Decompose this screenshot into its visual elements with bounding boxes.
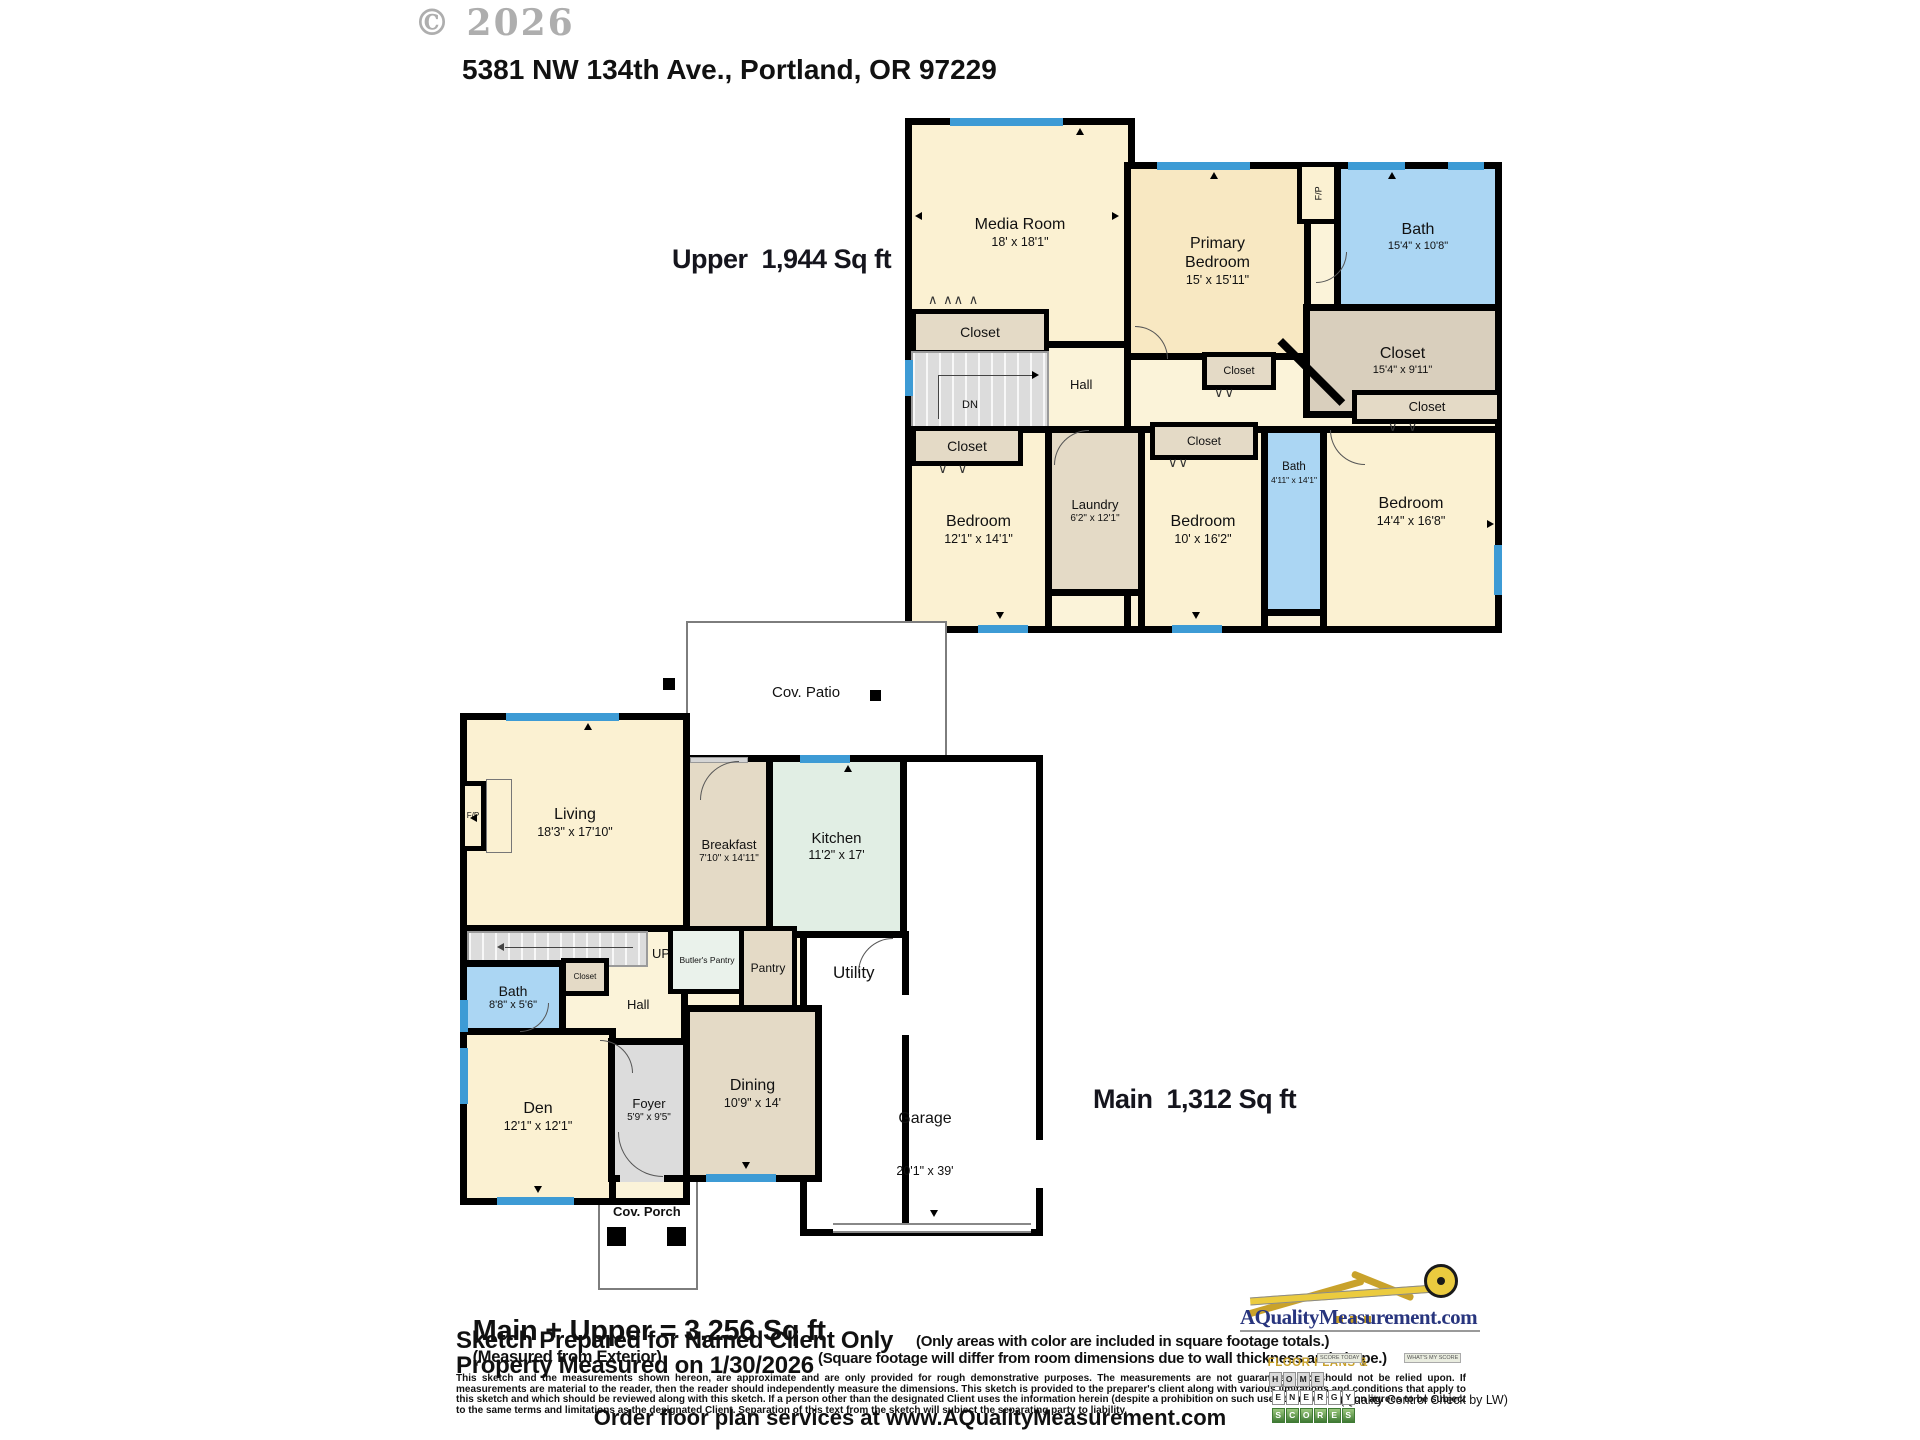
room-dims: 11'2" x 17' xyxy=(808,848,864,863)
logo-tape-reel-icon xyxy=(1424,1264,1458,1298)
room-label: Bedroom xyxy=(1171,513,1236,532)
room-label: Garage xyxy=(855,1110,995,1128)
room-dims: 20'1" x 39' xyxy=(855,1164,995,1178)
garage-door xyxy=(833,1223,1031,1233)
room-dims: 6'2" x 12'1" xyxy=(1070,513,1119,525)
measure-arrow-icon xyxy=(1076,128,1084,135)
room-label: Butler's Pantry xyxy=(679,955,734,965)
room-label: Foyer xyxy=(632,1096,665,1111)
copyright-watermark: © 2026 xyxy=(414,2,575,44)
room-dims: 10' x 16'2" xyxy=(1174,532,1231,547)
room-label: Closet xyxy=(1223,365,1254,378)
room-closet-bed-mid: Closet xyxy=(1150,422,1258,460)
room-closet-right: Closet xyxy=(1352,390,1502,424)
swing-door-icon: ∨ ∨ xyxy=(938,462,968,475)
room-dims: 18'3" x 17'10" xyxy=(537,825,613,840)
measure-arrow-icon xyxy=(930,1210,938,1217)
logo-word-energy: ENERGY xyxy=(1271,1389,1355,1406)
room-dining: Dining 10'9" x 14' xyxy=(683,1005,822,1182)
room-dims: 15' x 15'11" xyxy=(1186,273,1249,288)
stairs-arrow-icon xyxy=(1032,371,1039,379)
room-label: Media Room xyxy=(975,216,1066,235)
measure-arrow-icon xyxy=(1112,212,1119,220)
room-label: Bedroom xyxy=(946,513,1011,532)
porch-post xyxy=(667,1227,686,1246)
window xyxy=(905,360,913,396)
main-area-label: Main 1,312 Sq ft xyxy=(1093,1084,1296,1115)
porch-post xyxy=(607,1227,626,1246)
logo-tagline-row: FLOOR PLANS & HOME ENERGY SCORES xyxy=(1241,1335,1368,1440)
room-label: Closet xyxy=(947,438,987,455)
logo-whats-my-score: WHAT'S MY SCORE xyxy=(1404,1353,1461,1363)
room-dims: 7'10" x 14'11" xyxy=(699,853,759,865)
cov-patio-label: Cov. Patio xyxy=(772,684,840,701)
room-dims: 4'11" x 14'1" xyxy=(1271,475,1317,485)
stairs-run-line xyxy=(938,375,1034,376)
room-bath-main: Bath 8'8" x 5'6" xyxy=(460,960,566,1035)
window xyxy=(1157,162,1250,170)
measure-arrow-icon xyxy=(742,1162,750,1169)
room-bath-upper: Bath 15'4" x 10'8" xyxy=(1334,162,1502,312)
window xyxy=(1494,545,1502,595)
stairs-down xyxy=(911,351,1049,435)
window xyxy=(1172,625,1222,633)
stairs-run-line xyxy=(505,947,633,948)
measure-arrow-icon xyxy=(1487,520,1494,528)
window xyxy=(460,1000,468,1032)
window xyxy=(706,1174,776,1182)
measure-arrow-icon xyxy=(584,723,592,730)
room-dims: 14'4" x 16'8" xyxy=(1377,514,1446,529)
room-dims: 12'1" x 12'1" xyxy=(504,1119,573,1134)
logo-score-today: SCORE TODAY xyxy=(1317,1353,1362,1363)
cov-porch-label: Cov. Porch xyxy=(613,1204,681,1219)
bifold-door-icon: ∧ ∧∧ ∧ xyxy=(928,293,979,306)
fireplace-hearth xyxy=(486,779,512,853)
room-label: Dining xyxy=(730,1077,775,1096)
room-label: Primary Bedroom xyxy=(1170,235,1265,273)
garage-label-block: Garage 20'1" x 39' xyxy=(855,1074,995,1214)
measure-arrow-icon xyxy=(915,212,922,220)
room-pantry: Pantry xyxy=(739,926,797,1010)
room-kitchen: Kitchen 11'2" x 17' xyxy=(766,755,907,938)
hall-main-label: Hall xyxy=(627,997,649,1012)
measure-arrow-icon xyxy=(1192,612,1200,619)
room-label: Closet xyxy=(1380,345,1425,364)
window xyxy=(1348,162,1405,170)
patio-post xyxy=(870,690,881,701)
room-dims: 10'9" x 14' xyxy=(724,1096,781,1111)
swing-door-icon: ∨ ∨ xyxy=(1388,420,1418,433)
room-label: Kitchen xyxy=(811,830,861,848)
room-label: Bath xyxy=(1402,221,1435,240)
logo-word-home: HOME xyxy=(1268,1371,1324,1388)
window xyxy=(497,1197,574,1205)
hall-upper-label: Hall xyxy=(1070,377,1092,392)
room-closet-bed-left: Closet xyxy=(911,426,1023,466)
room-label: F/P xyxy=(1314,186,1325,200)
window xyxy=(950,118,1063,126)
room-den: Den 12'1" x 12'1" xyxy=(460,1028,616,1205)
room-label: Breakfast xyxy=(702,837,757,852)
room-dims: 5'9" x 9'5" xyxy=(627,1112,671,1124)
room-closet-stairs: Closet xyxy=(911,309,1049,355)
logo-underline xyxy=(1240,1330,1480,1332)
room-dims: 18' x 18'1" xyxy=(991,235,1048,250)
room-label: Bath xyxy=(499,983,528,1000)
room-dims: 12'1" x 14'1" xyxy=(944,532,1013,547)
room-label: Den xyxy=(523,1100,552,1119)
room-label: Pantry xyxy=(751,961,786,975)
measure-arrow-icon xyxy=(996,612,1004,619)
room-label: Laundry xyxy=(1072,497,1119,512)
measure-arrow-icon xyxy=(470,814,477,822)
window xyxy=(1448,162,1484,170)
window xyxy=(460,1048,468,1104)
room-label: Closet xyxy=(574,972,597,981)
room-dims: 15'4" x 9'11" xyxy=(1373,364,1433,377)
reel-hub-icon xyxy=(1437,1277,1445,1285)
patio-door-threshold xyxy=(690,757,748,763)
stairs-dn-label: DN xyxy=(962,399,978,411)
swing-door-icon: ∨∨ xyxy=(1214,386,1235,399)
room-dims: 15'4" x 10'8" xyxy=(1388,240,1448,253)
garage-side-door-gap xyxy=(1036,1140,1043,1188)
utility-door-gap xyxy=(898,995,909,1035)
measure-arrow-icon xyxy=(1210,172,1218,179)
room-label: Closet xyxy=(1187,434,1221,448)
room-label: Bath xyxy=(1282,461,1306,475)
page-title: 5381 NW 134th Ave., Portland, OR 97229 xyxy=(462,54,997,86)
room-label: Living xyxy=(554,806,596,825)
stairs-arrow-icon xyxy=(497,943,504,951)
room-label: Closet xyxy=(960,324,1000,341)
room-butlers-pantry: Butler's Pantry xyxy=(668,926,746,994)
floor-plan-sketch: © 2026 5381 NW 134th Ave., Portland, OR … xyxy=(0,0,1920,1440)
swing-door-icon: ∨∨ xyxy=(1168,456,1189,469)
logo-domain: AQualityMeasurement.com xyxy=(1240,1305,1477,1330)
room-closet-main: Closet xyxy=(561,958,609,996)
order-text: Order floor plan services at www.AQualit… xyxy=(594,1405,1227,1430)
room-bath-small: Bath 4'11" x 14'1" xyxy=(1261,426,1327,616)
upper-area-label: Upper 1,944 Sq ft xyxy=(672,244,891,275)
window xyxy=(506,713,619,721)
measure-arrow-icon xyxy=(534,1186,542,1193)
logo-word-scores: SCORES xyxy=(1271,1407,1355,1424)
order-line: Order floor plan services at www.AQualit… xyxy=(520,1405,1300,1431)
room-label: Bedroom xyxy=(1379,495,1444,514)
measure-arrow-icon xyxy=(844,765,852,772)
stairs-run-hook xyxy=(938,375,939,419)
room-label: Closet xyxy=(1409,399,1446,414)
measure-arrow-icon xyxy=(1388,172,1396,179)
patio-post xyxy=(663,678,675,690)
window xyxy=(978,625,1028,633)
window xyxy=(800,755,850,763)
